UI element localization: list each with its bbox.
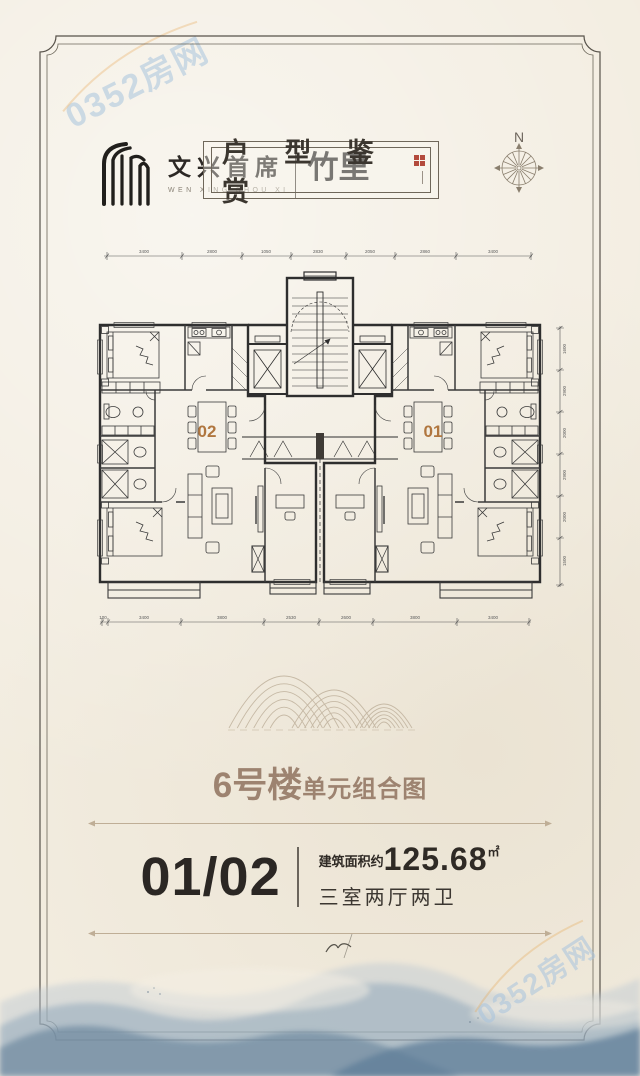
unit-right-label: 01 bbox=[424, 422, 443, 441]
svg-text:2860: 2860 bbox=[420, 249, 431, 254]
building-suffix: 单元组合图 bbox=[302, 776, 427, 803]
svg-text:2900: 2900 bbox=[562, 469, 567, 480]
title-banner: 户 型 鉴 赏 bbox=[203, 141, 439, 199]
svg-text:2830: 2830 bbox=[313, 249, 324, 254]
divider-top bbox=[88, 819, 552, 828]
poster: 0352房网 文兴首席 WEN XING SHOU XI 竹里 N bbox=[0, 0, 640, 1076]
svg-text:1500: 1500 bbox=[562, 555, 567, 566]
red-seal-icon bbox=[414, 155, 427, 166]
compass-north-label: N bbox=[514, 129, 524, 145]
dimension-labels: 3400 2800 1050 2830 2050 2860 3400 100 3… bbox=[99, 249, 567, 620]
dim-ticks bbox=[100, 252, 564, 626]
svg-text:100: 100 bbox=[99, 615, 107, 620]
floor-plan: 3400 2800 1050 2830 2050 2860 3400 100 3… bbox=[80, 240, 570, 640]
page-title: 户 型 鉴 赏 bbox=[212, 131, 430, 209]
svg-text:1600: 1600 bbox=[562, 343, 567, 354]
area-unit: ㎡ bbox=[488, 843, 500, 858]
area-value: 125.68 bbox=[384, 843, 488, 875]
svg-text:3400: 3400 bbox=[139, 249, 150, 254]
svg-text:2800: 2800 bbox=[207, 249, 218, 254]
compass-spokes bbox=[502, 151, 536, 185]
unit-info: 01/02 建筑面积约 125.68 ㎡ 三室两厅两卫 bbox=[0, 843, 640, 910]
svg-text:3800: 3800 bbox=[410, 615, 421, 620]
mountain-contours bbox=[222, 652, 422, 734]
svg-text:2600: 2600 bbox=[341, 615, 352, 620]
section-title: 6号楼单元组合图 bbox=[0, 757, 640, 808]
svg-text:2900: 2900 bbox=[562, 385, 567, 396]
svg-text:3400: 3400 bbox=[488, 249, 499, 254]
unit-02-plan bbox=[98, 323, 317, 599]
title-banner-inner-border: 户 型 鉴 赏 bbox=[211, 147, 431, 193]
svg-text:2000: 2000 bbox=[562, 427, 567, 438]
seal-caption-mark bbox=[422, 171, 423, 184]
svg-text:3400: 3400 bbox=[488, 615, 499, 620]
svg-text:3800: 3800 bbox=[217, 615, 228, 620]
info-separator bbox=[297, 847, 299, 907]
compass-icon: N bbox=[488, 116, 550, 202]
room-layout: 三室两厅两卫 bbox=[319, 881, 500, 910]
brand-logo-icon bbox=[96, 134, 154, 210]
unit-01-plan bbox=[324, 323, 543, 599]
svg-text:3400: 3400 bbox=[139, 615, 150, 620]
unit-left-label: 02 bbox=[198, 422, 217, 441]
building-number: 6号楼 bbox=[213, 766, 302, 805]
svg-text:1050: 1050 bbox=[261, 249, 272, 254]
svg-text:2050: 2050 bbox=[365, 249, 376, 254]
unit-numbers: 01/02 bbox=[140, 846, 280, 908]
svg-text:2000: 2000 bbox=[562, 511, 567, 522]
area-prefix: 建筑面积约 bbox=[319, 843, 384, 868]
svg-text:2530: 2530 bbox=[286, 615, 297, 620]
dimension-lines bbox=[100, 252, 564, 626]
